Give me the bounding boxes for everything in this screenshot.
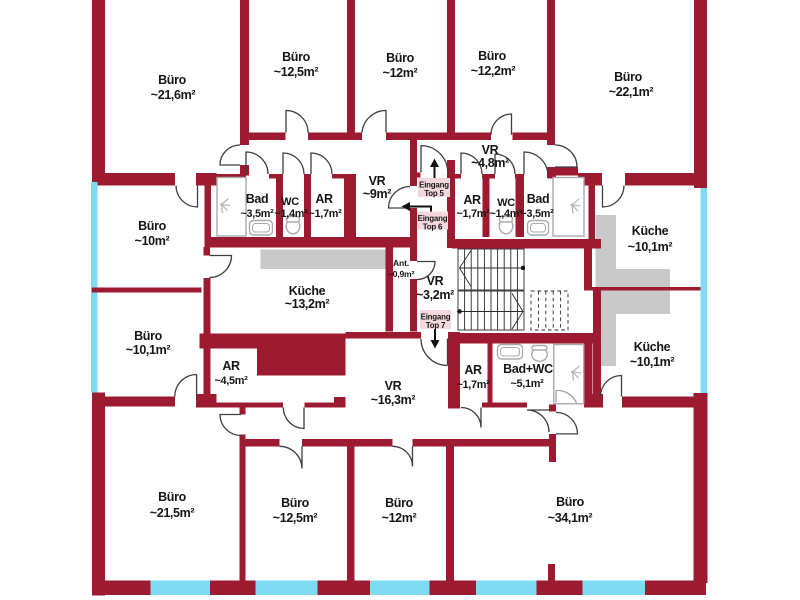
svg-text:~3,5m²: ~3,5m² <box>520 208 554 220</box>
svg-text:AR: AR <box>463 193 481 207</box>
svg-text:~13,2m²: ~13,2m² <box>285 297 330 311</box>
svg-text:AR: AR <box>315 192 333 206</box>
svg-text:~12m²: ~12m² <box>383 66 418 80</box>
svg-text:Bad: Bad <box>246 192 269 206</box>
svg-text:Bad+WC: Bad+WC <box>503 362 553 376</box>
svg-text:~10,1m²: ~10,1m² <box>628 240 673 254</box>
svg-text:Büro: Büro <box>281 496 309 510</box>
svg-text:~21,5m²: ~21,5m² <box>150 506 195 520</box>
svg-text:~21,6m²: ~21,6m² <box>151 88 196 102</box>
svg-text:~9m²: ~9m² <box>363 187 391 201</box>
svg-text:Büro: Büro <box>282 50 310 64</box>
svg-text:AR: AR <box>464 363 482 377</box>
svg-text:Küche: Küche <box>289 284 326 298</box>
svg-text:~4,5m²: ~4,5m² <box>214 375 248 387</box>
svg-text:~10,1m²: ~10,1m² <box>126 343 171 357</box>
svg-text:Büro: Büro <box>138 219 166 233</box>
svg-text:~4,8m²: ~4,8m² <box>471 156 509 170</box>
svg-text:Top 6: Top 6 <box>423 223 443 232</box>
svg-text:~1,4m²: ~1,4m² <box>274 208 308 220</box>
svg-text:Büro: Büro <box>158 490 186 504</box>
svg-text:VR: VR <box>385 379 402 393</box>
svg-text:~16,3m²: ~16,3m² <box>371 393 416 407</box>
svg-text:~12,5m²: ~12,5m² <box>274 65 319 79</box>
svg-text:Bad: Bad <box>527 192 550 206</box>
svg-text:~1,7m²: ~1,7m² <box>456 379 490 391</box>
svg-text:Büro: Büro <box>386 51 414 65</box>
svg-text:~12,2m²: ~12,2m² <box>471 64 516 78</box>
svg-text:~12m²: ~12m² <box>382 511 417 525</box>
svg-text:~5,1m²: ~5,1m² <box>510 378 544 390</box>
svg-text:~1,7m²: ~1,7m² <box>308 208 342 220</box>
svg-text:WC: WC <box>281 196 299 208</box>
svg-text:~34,1m²: ~34,1m² <box>548 511 593 525</box>
svg-text:Büro: Büro <box>385 496 413 510</box>
svg-text:VR: VR <box>482 143 499 157</box>
svg-text:Büro: Büro <box>556 495 584 509</box>
svg-text:~1,7m²: ~1,7m² <box>456 208 490 220</box>
svg-text:~1,4m²: ~1,4m² <box>489 208 523 220</box>
svg-text:~3,5m²: ~3,5m² <box>240 208 274 220</box>
svg-text:Büro: Büro <box>158 73 186 87</box>
svg-text:Büro: Büro <box>134 329 162 343</box>
svg-text:VR: VR <box>369 174 386 188</box>
svg-text:~3,2m²: ~3,2m² <box>416 288 454 302</box>
svg-text:~22,1m²: ~22,1m² <box>609 85 654 99</box>
svg-text:Top 7: Top 7 <box>426 321 446 330</box>
svg-text:~10,1m²: ~10,1m² <box>630 355 675 369</box>
svg-text:Küche: Küche <box>634 340 671 354</box>
svg-text:AR: AR <box>222 359 240 373</box>
svg-text:Büro: Büro <box>478 49 506 63</box>
svg-text:Top 5: Top 5 <box>424 189 444 198</box>
svg-text:Ant.: Ant. <box>393 258 409 268</box>
svg-text:~0,9m²: ~0,9m² <box>388 269 415 279</box>
svg-text:~10m²: ~10m² <box>135 234 170 248</box>
svg-text:Küche: Küche <box>632 224 669 238</box>
svg-text:VR: VR <box>427 274 444 288</box>
svg-text:~12,5m²: ~12,5m² <box>273 511 318 525</box>
svg-text:Büro: Büro <box>614 70 642 84</box>
